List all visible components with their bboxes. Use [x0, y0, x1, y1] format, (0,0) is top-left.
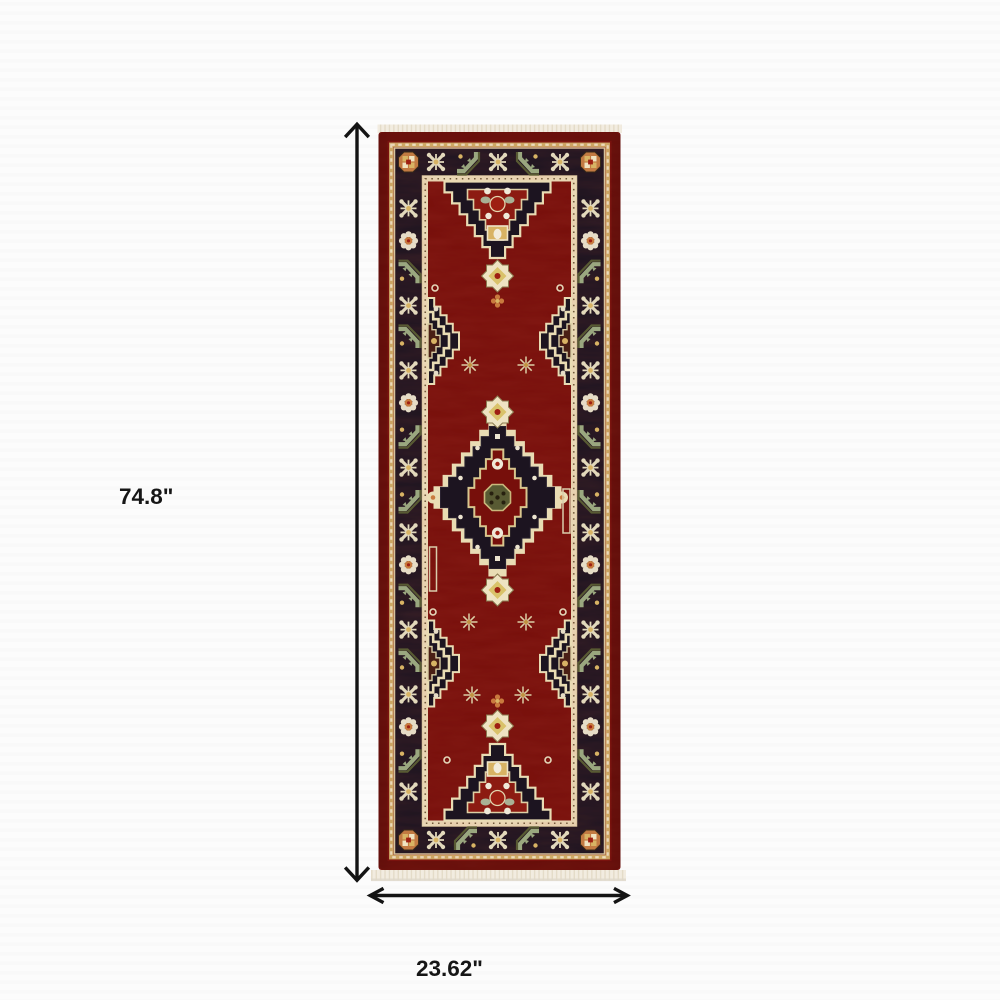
svg-text:23.62": 23.62": [416, 956, 483, 981]
svg-text:74.8": 74.8": [119, 484, 173, 509]
